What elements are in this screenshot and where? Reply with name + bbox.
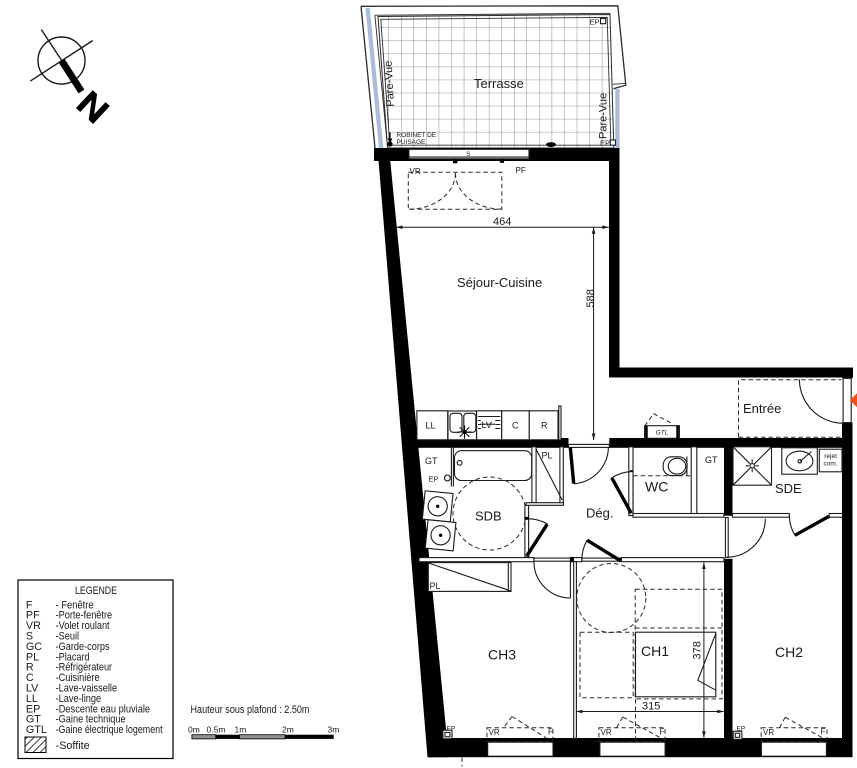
- svg-text:PUISAGE: PUISAGE: [397, 139, 427, 146]
- svg-text:com.: com.: [824, 461, 838, 468]
- svg-text:LEGENDE: LEGENDE: [75, 585, 117, 597]
- svg-text:0m: 0m: [188, 725, 200, 735]
- svg-text:VR: VR: [763, 728, 774, 737]
- svg-text:EP: EP: [600, 139, 610, 148]
- svg-text:S: S: [466, 152, 470, 158]
- svg-text:LL: LL: [426, 421, 436, 431]
- svg-text:C: C: [512, 421, 519, 431]
- svg-text:GTL: GTL: [26, 724, 47, 736]
- svg-text:Pare-Vue: Pare-Vue: [598, 93, 610, 139]
- svg-text:Pare-Vue: Pare-Vue: [383, 60, 397, 107]
- svg-text:EP: EP: [590, 18, 600, 27]
- svg-text:F: F: [821, 727, 826, 736]
- svg-text:588: 588: [585, 289, 597, 307]
- svg-text:WC: WC: [645, 479, 668, 495]
- svg-text:GT: GT: [705, 455, 718, 465]
- svg-text:0.5m: 0.5m: [207, 725, 226, 735]
- svg-text:PL: PL: [430, 581, 441, 591]
- svg-text:rejet: rejet: [824, 453, 837, 460]
- svg-text:378: 378: [692, 641, 704, 659]
- svg-text:Terrasse: Terrasse: [474, 76, 524, 91]
- svg-text:VR: VR: [489, 728, 500, 737]
- svg-text:Entrée: Entrée: [743, 401, 781, 416]
- svg-text:SDB: SDB: [475, 509, 502, 524]
- svg-text:PL: PL: [542, 451, 553, 461]
- svg-text:EP: EP: [429, 475, 439, 484]
- svg-text:2m: 2m: [282, 725, 294, 735]
- svg-text:GTL: GTL: [656, 429, 669, 436]
- svg-text:CH3: CH3: [488, 647, 516, 663]
- svg-text:1m: 1m: [235, 725, 247, 735]
- svg-text:-Gaine électrique logement: -Gaine électrique logement: [56, 724, 163, 736]
- svg-text:F: F: [660, 727, 665, 736]
- svg-text:LV: LV: [482, 420, 492, 430]
- svg-text:PF: PF: [516, 166, 526, 175]
- svg-text:3m: 3m: [328, 725, 340, 735]
- svg-text:464: 464: [493, 216, 511, 228]
- svg-text:Séjour-Cuisine: Séjour-Cuisine: [457, 275, 542, 290]
- svg-text:GT: GT: [425, 456, 438, 466]
- svg-text:CH1: CH1: [641, 643, 669, 659]
- svg-text:315: 315: [642, 701, 660, 713]
- svg-text:VR: VR: [601, 728, 612, 737]
- svg-text:SDE: SDE: [775, 481, 802, 496]
- svg-text:F: F: [548, 727, 553, 736]
- svg-text:Dég.: Dég.: [586, 506, 613, 521]
- svg-text:Hauteur sous plafond : 2.50m: Hauteur sous plafond : 2.50m: [191, 704, 310, 716]
- svg-text:ROBINET DE: ROBINET DE: [397, 132, 437, 139]
- svg-text:CH2: CH2: [775, 644, 803, 660]
- svg-text:-Soffite: -Soffite: [56, 740, 90, 752]
- svg-text:R: R: [541, 421, 548, 431]
- svg-text:VR: VR: [410, 167, 421, 176]
